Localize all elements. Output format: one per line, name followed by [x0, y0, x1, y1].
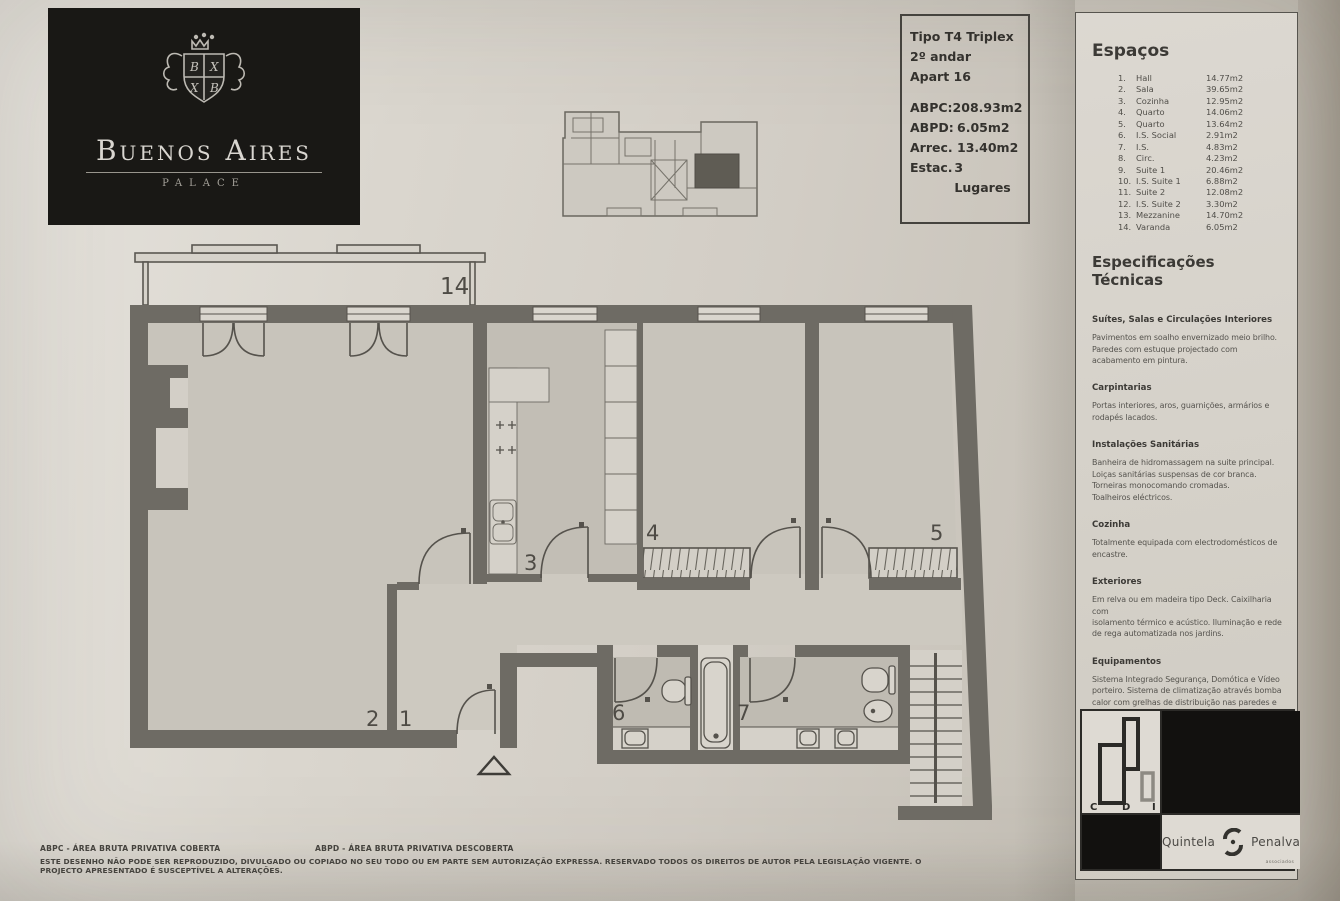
kitchen-sink-icon	[490, 500, 516, 544]
sink-icon	[835, 729, 857, 748]
black-cell	[1162, 711, 1300, 815]
spec-heading: Cozinha	[1092, 520, 1285, 530]
metric-label: ABPD:	[910, 118, 957, 138]
metric-value: 208.93m2	[953, 98, 1023, 118]
agency-name: Quintela	[1162, 835, 1215, 849]
agency-swirl-icon	[1220, 828, 1246, 856]
space-row: 8.Circ.4.23m2	[1118, 153, 1285, 164]
spec-heading: Suítes, Salas e Circulações Interiores	[1092, 315, 1285, 325]
room-label-varanda: 14	[440, 274, 469, 300]
room-label-sala: 2	[366, 707, 379, 731]
key-plan	[555, 102, 767, 226]
spec-section-interiores: Suítes, Salas e Circulações Interiores P…	[1092, 315, 1285, 366]
space-row: 3.Cozinha12.95m2	[1118, 96, 1285, 107]
crest-letter: B	[189, 60, 199, 74]
metric-label: Estac.	[910, 158, 954, 198]
crest-icon: B X X B	[152, 30, 256, 126]
spec-heading: Exteriores	[1092, 577, 1285, 587]
brand-subtitle: PALACE	[162, 178, 246, 189]
metric-value: 6.05m2	[957, 118, 1010, 138]
sink-icon	[622, 729, 648, 748]
branding-block: C D I Quintela Penalva associados	[1080, 709, 1295, 871]
specs-title: Especificações Técnicas	[1092, 253, 1285, 289]
room-label-quarto5: 5	[930, 521, 943, 545]
bidet-icon	[864, 700, 892, 722]
unit-number: Apart 16	[910, 67, 1020, 87]
spec-body: Portas interiores, aros, guarnições, arm…	[1092, 400, 1285, 423]
unit-metrics: ABPC:208.93m2 ABPD:6.05m2 Arrec.13.40m2 …	[910, 98, 1020, 198]
unit-type: Tipo T4 Triplex	[910, 27, 1020, 47]
unit-floor: 2º andar	[910, 47, 1020, 67]
agency-subtitle: associados	[1266, 860, 1295, 865]
cdi-letter: C	[1090, 802, 1097, 811]
room-label-quarto4: 4	[646, 521, 659, 545]
disclaimer: ESTE DESENHO NÃO PODE SER REPRODUZIDO, D…	[40, 857, 930, 875]
metric-label: Arrec.	[910, 138, 957, 158]
spec-body: Totalmente equipada com electrodoméstico…	[1092, 537, 1285, 560]
room-label-cozinha: 3	[524, 551, 537, 575]
spec-body: Banheira de hidromassagem na suite princ…	[1092, 457, 1285, 503]
spec-section-instalacoes: Instalações Sanitárias Banheira de hidro…	[1092, 440, 1285, 503]
legend-abpc: ABPC - ÁREA BRUTA PRIVATIVA COBERTA	[40, 844, 220, 853]
floor-plan: 14 3 4 5 2 1 6 7	[125, 240, 1000, 825]
cdi-letter: D	[1122, 802, 1130, 811]
spec-body: Em relva ou em madeira tipo Deck. Caixil…	[1092, 594, 1285, 640]
spec-heading: Carpintarias	[1092, 383, 1285, 393]
spec-section-cozinha: Cozinha Totalmente equipada com electrod…	[1092, 520, 1285, 560]
space-row: 6.I.S. Social2.91m2	[1118, 130, 1285, 141]
space-row: 11.Suite 212.08m2	[1118, 187, 1285, 198]
brand-name: Buenos Aires	[86, 134, 322, 173]
agency-name: Penalva	[1251, 835, 1300, 849]
toilet-icon	[862, 666, 895, 694]
entry-arrow-icon	[479, 757, 509, 774]
quintela-penalva-logo: Quintela Penalva associados	[1162, 815, 1300, 869]
space-row: 5.Quarto13.64m2	[1118, 119, 1285, 130]
space-row: 7.I.S.4.83m2	[1118, 142, 1285, 153]
paper-right-edge	[1298, 0, 1340, 901]
sink-icon	[797, 729, 819, 748]
space-row: 10.I.S. Suite 16.88m2	[1118, 176, 1285, 187]
room-label-hall: 1	[399, 707, 412, 731]
black-cell	[1082, 815, 1162, 869]
space-row: 13.Mezzanine14.70m2	[1118, 210, 1285, 221]
brand-logo-box: B X X B Buenos Aires PALACE	[48, 8, 360, 225]
space-row: 12.I.S. Suite 23.30m2	[1118, 199, 1285, 210]
spec-heading: Instalações Sanitárias	[1092, 440, 1285, 450]
key-plan-unit-highlight	[695, 154, 739, 188]
room-label-is6: 6	[612, 701, 625, 725]
space-row: 4.Quarto14.06m2	[1118, 107, 1285, 118]
unit-info-box: Tipo T4 Triplex 2º andar Apart 16 ABPC:2…	[900, 14, 1030, 224]
spec-sidebar: Espaços 1.Hall14.77m2 2.Sala39.65m2 3.Co…	[1075, 12, 1298, 880]
toilet-icon	[662, 677, 691, 705]
spaces-title: Espaços	[1092, 41, 1285, 61]
spec-section-carpintarias: Carpintarias Portas interiores, aros, gu…	[1092, 383, 1285, 423]
metric-value: 13.40m2	[957, 138, 1018, 158]
space-row: 1.Hall14.77m2	[1118, 73, 1285, 84]
crest-letter: X	[209, 60, 219, 74]
legend-abpd: ABPD - ÁREA BRUTA PRIVATIVA DESCOBERTA	[315, 844, 514, 853]
metric-label: ABPC:	[910, 98, 953, 118]
bathtub-icon	[701, 658, 730, 748]
cdi-letter: I	[1152, 802, 1156, 811]
spaces-list: 1.Hall14.77m2 2.Sala39.65m2 3.Cozinha12.…	[1118, 73, 1285, 233]
crest-letter: B	[209, 81, 219, 95]
crest-letter: X	[189, 81, 199, 95]
spec-heading: Equipamentos	[1092, 657, 1285, 667]
cdi-logo: C D I	[1082, 711, 1162, 815]
spec-body: Pavimentos em soalho envernizado meio br…	[1092, 332, 1285, 366]
metric-value: 3 Lugares	[954, 158, 1020, 198]
spec-section-exteriores: Exteriores Em relva ou em madeira tipo D…	[1092, 577, 1285, 640]
balcony	[135, 245, 485, 305]
space-row: 2.Sala39.65m2	[1118, 84, 1285, 95]
room-label-is7: 7	[737, 701, 750, 725]
space-row: 9.Suite 120.46m2	[1118, 165, 1285, 176]
space-row: 14.Varanda6.05m2	[1118, 222, 1285, 233]
